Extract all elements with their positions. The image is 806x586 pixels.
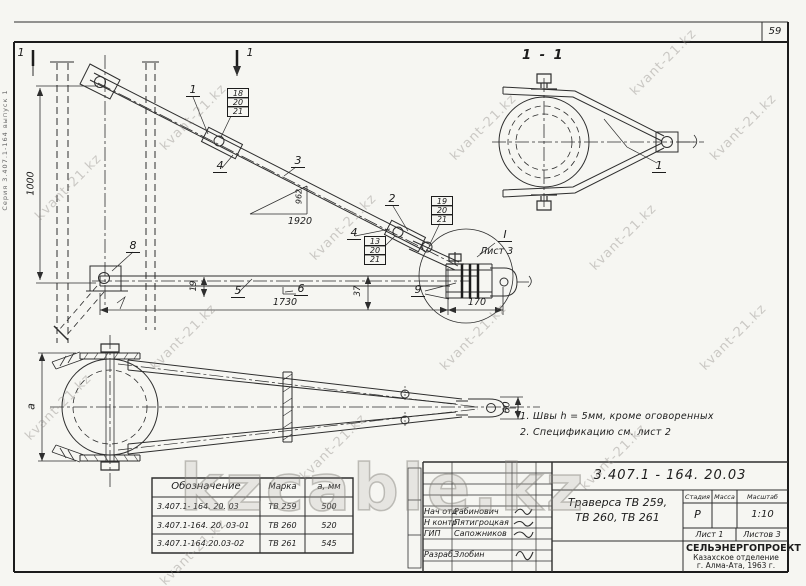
spec-row2-a: 520 [305, 521, 353, 530]
name-sapozhnikov: Сапожников [454, 529, 511, 538]
spec-header-mark: Марка [260, 482, 305, 492]
dim-962: 962 [295, 182, 304, 212]
scale-value: 1:10 [737, 509, 788, 520]
spec-row2-designation: 3.407.1-164. 20. 03-01 [157, 521, 257, 530]
drawing-title-line1: Траверса ТВ 259, [552, 496, 683, 509]
spec-row1-mark: ТВ 259 [260, 502, 305, 511]
name-n-kontr: Пятигроцкая [454, 518, 511, 527]
ref-box-21a: 21 [227, 106, 249, 117]
detail-sheet-ref: Лист 3 [480, 246, 524, 257]
part-label-4a: 4 [213, 160, 227, 173]
role-razrab: Разраб. [424, 550, 452, 559]
spec-row3-a: 545 [305, 539, 353, 548]
part-label-5: 5 [231, 285, 245, 298]
dim-a: а [25, 397, 38, 417]
header-mass: Масса [712, 493, 737, 501]
dim-1920: 1920 [275, 216, 325, 227]
margin-series-note: Серия 3.407.1-164 выпуск 1 [1, 50, 13, 250]
drawing-title-line2: ТВ 260, ТВ 261 [552, 511, 683, 524]
drawing-sheet: Серия 3.407.1-164 выпуск 1 [0, 0, 806, 586]
spec-header-designation: Обозначение [152, 481, 260, 492]
dim-60: 60 [502, 396, 513, 420]
doc-number: 3.407.1 - 164. 20.03 [552, 468, 788, 483]
name-zlobin: Злобин [454, 550, 511, 559]
dim-37: 37 [353, 279, 363, 303]
part-label-9: 9 [411, 284, 425, 297]
role-nach-otd: Нач отд [424, 507, 452, 516]
stage-value: Р [683, 508, 712, 521]
part-label-8: 8 [126, 240, 140, 253]
spec-row3-designation: 3.407.1-164.20.03-02 [157, 539, 257, 548]
note-2: 2. Спецификацию см. лист 2 [520, 427, 671, 438]
dim-19: 19 [189, 274, 199, 298]
part-label-4b: 4 [347, 227, 361, 240]
sheets-cell: Листов 3 [736, 530, 788, 539]
role-gip: ГИП [424, 529, 452, 538]
part-label-1: 1 [186, 84, 200, 97]
detail-mark: I [498, 229, 512, 242]
spec-row3-mark: ТВ 261 [260, 539, 305, 548]
name-rabinovich: Рабинович [454, 507, 511, 516]
section-view-title: 1 - 1 [522, 48, 565, 63]
header-scale: Масштаб [737, 493, 788, 501]
org-city-year: г. Алма-Ата, 1963 г. [686, 561, 786, 570]
part-label-6: 6 [294, 283, 308, 296]
spec-header-a: а, мм [305, 482, 353, 492]
dim-170: 170 [462, 297, 492, 308]
section-mark-left: 1 [14, 47, 28, 59]
note-1: 1. Швы h = 5мм, кроме оговоренных [520, 411, 714, 422]
part-label-3: 3 [291, 155, 305, 168]
ref-box-21b: 21 [431, 214, 453, 225]
ref-box-21c: 21 [364, 254, 386, 265]
spec-row2-mark: ТВ 260 [260, 521, 305, 530]
spec-row1-a: 500 [305, 502, 353, 511]
dim-1730: 1730 [255, 297, 315, 308]
dim-1000: 1000 [26, 164, 37, 204]
section-1-1-view [492, 74, 704, 210]
part-label-2: 2 [385, 193, 399, 206]
sheet-cell: Лист 1 [683, 530, 736, 539]
plan-view [38, 335, 540, 487]
role-n-kontr: Н контр [424, 518, 452, 527]
binding-box [408, 468, 421, 568]
section-mark-right: 1 [243, 47, 257, 59]
section-part-label-1: 1 [652, 160, 666, 173]
header-stage: Стадия [683, 493, 712, 501]
sheet-number: 59 [762, 26, 788, 37]
spec-row1-designation: 3.407.1- 164. 20. 03 [157, 502, 257, 511]
